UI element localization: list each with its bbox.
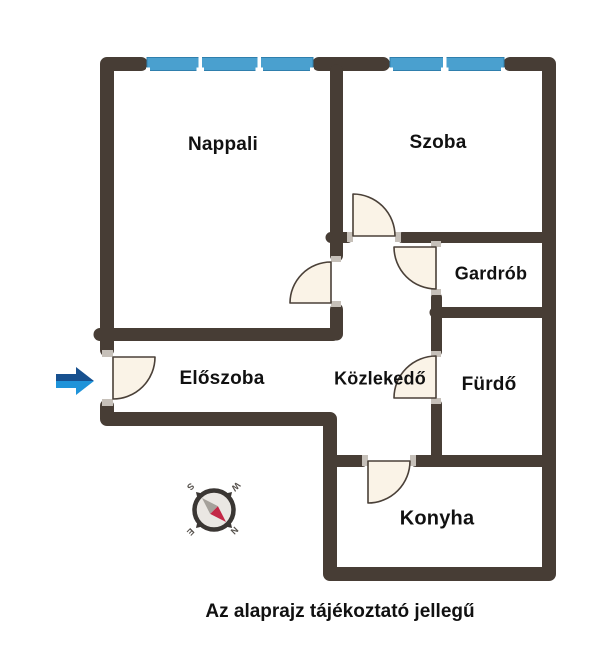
entrance-arrow-icon xyxy=(56,367,94,395)
floor-plan-canvas: N E S W xyxy=(0,0,600,665)
window-nappali xyxy=(147,58,313,71)
floor-plan-page: N E S W Nappali Szoba Gardrób Előszoba K… xyxy=(0,0,600,665)
room-label-szoba: Szoba xyxy=(410,132,467,154)
room-label-eloszoba: Előszoba xyxy=(179,368,264,390)
door-arc-konyha xyxy=(368,461,410,503)
room-label-nappali: Nappali xyxy=(188,134,258,156)
compass-letter-s: S xyxy=(185,481,196,492)
door-arc-nappali xyxy=(290,262,331,303)
compass-letter-w: W xyxy=(229,480,242,493)
hinge-marks xyxy=(102,232,441,466)
room-label-kozlekedo: Közlekedő xyxy=(334,369,426,390)
door-arc-szoba xyxy=(353,194,395,236)
caption: Az alaprajz tájékoztató jellegű xyxy=(90,601,590,623)
compass-icon: N E S W xyxy=(162,457,263,558)
door-arc-gardrob xyxy=(394,247,436,289)
room-label-gardrob: Gardrób xyxy=(455,264,527,285)
doors xyxy=(113,194,436,503)
room-label-konyha: Konyha xyxy=(400,508,475,531)
outer-walls xyxy=(107,64,549,574)
door-arc-entrance xyxy=(113,357,155,399)
room-label-furdo: Fürdő xyxy=(462,374,517,396)
compass-letter-e: E xyxy=(185,526,196,537)
walls xyxy=(100,64,549,574)
